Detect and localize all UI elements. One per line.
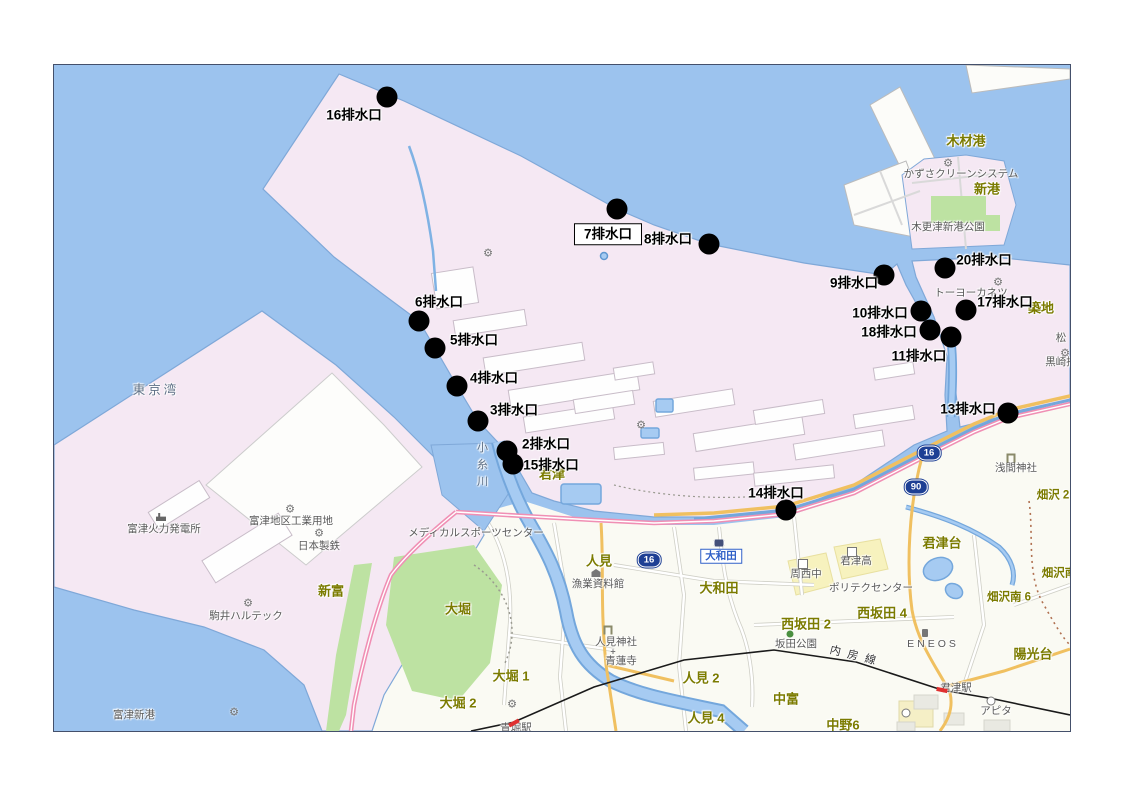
- facility-label: 漁業資料館: [572, 579, 625, 590]
- facility-label: ポリテクセンター: [829, 583, 913, 594]
- place-label: 西坂田 2: [781, 618, 831, 631]
- gear-icon: ⚙: [243, 599, 253, 610]
- poi-icon: [902, 709, 911, 718]
- place-label: 中野6: [826, 719, 859, 732]
- gas-icon: [922, 629, 928, 637]
- torii-icon: [1007, 454, 1016, 463]
- outlet-label: 20排水口: [956, 253, 1012, 267]
- place-label: 人見: [586, 555, 612, 568]
- gear-icon: ⚙: [993, 278, 1003, 289]
- gear-icon: ⚙: [314, 529, 324, 540]
- outlet-label: 18排水口: [861, 325, 917, 339]
- outlet-label: 6排水口: [415, 295, 463, 309]
- place-label: 大堀 1: [493, 670, 530, 683]
- temple-icon: +: [610, 648, 615, 657]
- outlet-label: 14排水口: [748, 486, 804, 500]
- outlet-dot: [425, 338, 446, 359]
- gear-icon: ⚙: [483, 249, 493, 260]
- outlet-dot: [998, 403, 1019, 424]
- outlet-dot: [776, 500, 797, 521]
- place-label: 畑沢南 6: [987, 592, 1031, 604]
- outlet-label: 8排水口: [644, 232, 692, 246]
- gear-icon: ⚙: [636, 421, 646, 432]
- water-label: 東京湾: [133, 384, 180, 397]
- park-icon: [787, 631, 794, 638]
- place-label: 大和田: [699, 582, 738, 595]
- place-label: 新富: [318, 585, 344, 598]
- place-label: 西坂田 4: [857, 607, 907, 620]
- outlet-dot: [699, 234, 720, 255]
- outlet-dot: [920, 320, 941, 341]
- route-shield: 90: [905, 480, 928, 495]
- place-label: 人見 4: [688, 712, 725, 725]
- place-label: 大堀 2: [440, 697, 477, 710]
- place-label: 新港: [974, 183, 1000, 196]
- poi-icon: [987, 697, 996, 706]
- facility-label: 浅間神社: [995, 463, 1037, 474]
- place-label: 君津台: [922, 537, 961, 550]
- outlet-dot: [409, 311, 430, 332]
- factory-icon: [156, 513, 166, 521]
- outlet-dot: [911, 301, 932, 322]
- facility-label: 坂田公園: [775, 639, 817, 650]
- outlet-label: 5排水口: [450, 333, 498, 347]
- outlet-dot: [607, 199, 628, 220]
- outlet-dot: [447, 376, 468, 397]
- outlet-label: 16排水口: [326, 108, 382, 122]
- facility-label: かずさクリーンシステム: [904, 169, 1019, 180]
- gear-icon: ⚙: [229, 708, 239, 719]
- rail-label: 内房線: [828, 645, 883, 669]
- place-label: 陽光台: [1013, 648, 1052, 661]
- facility-label: 富津新港: [113, 710, 155, 721]
- place-label: 畑沢 2: [1037, 490, 1070, 502]
- page: 木材港新港築地新富君津大堀大堀 1大堀 2人見人見 2人見 4大和田中富中野6西…: [0, 0, 1123, 794]
- outlet-label: 11排水口: [892, 349, 947, 363]
- outlet-label: 2排水口: [522, 437, 570, 451]
- train-icon: [714, 540, 725, 547]
- station-name-box: 大和田: [700, 549, 742, 564]
- place-label: 中富: [773, 693, 799, 706]
- school-icon: [847, 547, 857, 557]
- facility-label: 青蓮寺: [605, 656, 637, 667]
- facility-label: ENEOS: [907, 639, 959, 650]
- outlet-label: 4排水口: [470, 371, 518, 385]
- gear-icon: ⚙: [507, 700, 517, 711]
- outlet-label: 10排水口: [852, 306, 908, 320]
- gear-icon: ⚙: [285, 505, 295, 516]
- place-label: 畑沢南: [1042, 568, 1071, 580]
- route-shield: 16: [638, 553, 661, 568]
- outlet-dot: [956, 300, 977, 321]
- outlet-dot: [941, 327, 962, 348]
- outlet-label: 9排水口: [830, 276, 878, 290]
- outlet-dot: [503, 454, 524, 475]
- tick-icon: [936, 687, 948, 693]
- outlet-label: 3排水口: [490, 403, 538, 417]
- outlet-label: 15排水口: [523, 458, 579, 472]
- facility-label: 富津地区工業用地: [249, 516, 333, 527]
- facility-label: 富津火力発電所: [127, 524, 201, 535]
- place-label: 人見 2: [683, 672, 720, 685]
- museum-icon: [592, 569, 601, 577]
- outlet-dot: [377, 87, 398, 108]
- place-label: 大堀: [445, 603, 471, 616]
- facility-label: 松: [1056, 333, 1067, 344]
- outlet-dot: [935, 258, 956, 279]
- water-label: 小糸川: [476, 442, 487, 493]
- place-label: 木材港: [946, 135, 985, 148]
- facility-label: アピタ: [980, 706, 1012, 717]
- outlet-label: 13排水口: [940, 402, 996, 416]
- map: 木材港新港築地新富君津大堀大堀 1大堀 2人見人見 2人見 4大和田中富中野6西…: [53, 64, 1071, 732]
- facility-label: 周西中: [790, 569, 822, 580]
- map-overlay: 木材港新港築地新富君津大堀大堀 1大堀 2人見人見 2人見 4大和田中富中野6西…: [54, 65, 1070, 731]
- facility-label: 木更津新港公園: [911, 222, 985, 233]
- torii-icon: [604, 626, 613, 635]
- school-icon: [798, 559, 808, 569]
- gear-icon: ⚙: [943, 159, 953, 170]
- outlet-dot: [468, 411, 489, 432]
- route-shield: 16: [918, 446, 941, 461]
- outlet-label: 7排水口: [574, 223, 642, 245]
- gear-icon: ⚙: [1060, 349, 1070, 360]
- facility-label: 日本製鉄: [298, 541, 340, 552]
- facility-label: 人見神社: [595, 637, 637, 648]
- outlet-label: 17排水口: [977, 295, 1033, 309]
- facility-label: メディカルスポーツセンター: [408, 528, 544, 539]
- facility-label: 君津高: [840, 556, 872, 567]
- facility-label: 駒井ハルテック: [209, 611, 283, 622]
